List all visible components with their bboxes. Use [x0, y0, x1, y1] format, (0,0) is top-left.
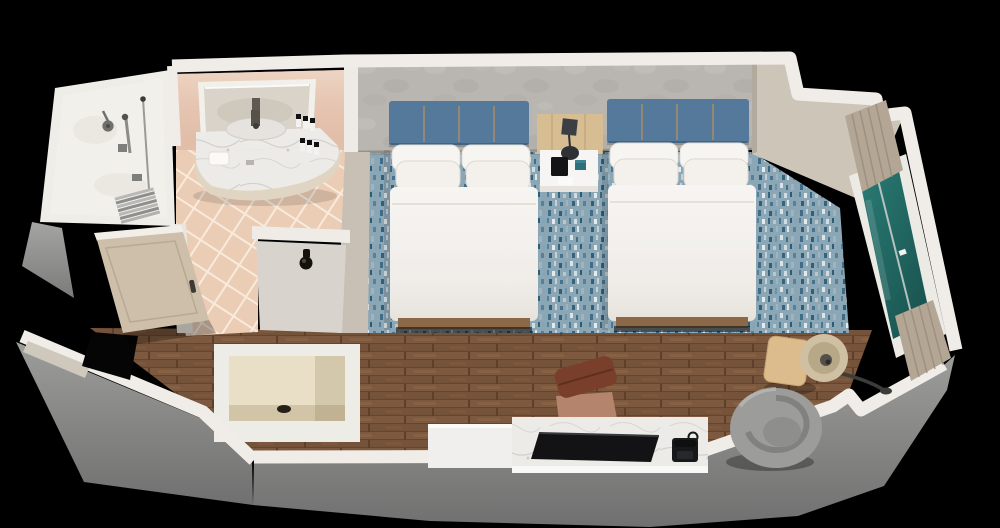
floor-lamp-bulb [820, 354, 832, 366]
hand-shower-head [122, 114, 128, 120]
phone-keypad [677, 451, 693, 459]
vanity-left-wall-top [172, 66, 176, 146]
shower-control-2 [132, 174, 142, 181]
floor-lamp-bulb-center [826, 360, 831, 365]
luggage-bench [428, 424, 512, 468]
shower-control-1 [118, 144, 127, 152]
bed2-base-shadow [614, 326, 750, 332]
luggage-bench-edge [428, 424, 512, 428]
hook-wall-face [256, 241, 346, 333]
table-lamp-shade [561, 118, 578, 135]
bed1-pillow-front-left [396, 161, 460, 191]
wall-hook [300, 257, 313, 270]
hotel-room-3d-floorplan [0, 0, 1000, 528]
queen-bed-2 [602, 99, 756, 332]
right-wall-shade [752, 60, 757, 154]
bed1-side-shadow [384, 150, 390, 330]
phone-handset [674, 440, 696, 447]
table-lamp-stem [569, 135, 570, 147]
soap-dish [246, 160, 254, 165]
bath-bedroom-wall-corner [344, 56, 358, 152]
folded-towel [209, 152, 229, 165]
nightstand [537, 114, 603, 192]
hotel-room-render-stage [0, 0, 1000, 528]
bed1-base-shadow [396, 327, 532, 333]
tv-flat [531, 433, 659, 462]
bed2-pillow-front-left [614, 159, 678, 189]
bed2-headboard [607, 99, 749, 143]
desk-front-edge [512, 466, 708, 473]
bed1-pillow-front-right [466, 161, 530, 191]
notepad [558, 177, 573, 185]
nightstand-tablet [551, 157, 568, 176]
sink-drain [253, 123, 259, 129]
bed2-duvet [608, 185, 756, 321]
shower-head-center [106, 124, 110, 128]
nightstand-front [540, 186, 598, 192]
closet [214, 344, 360, 442]
closet-floor-object [277, 405, 291, 413]
bed2-side-shadow [602, 150, 608, 330]
floor-lamp-base [880, 388, 892, 395]
bed1-duvet [390, 187, 538, 321]
wall-hook-highlight [302, 259, 306, 263]
shower-door-knob [140, 96, 146, 102]
queen-bed-1 [384, 101, 538, 333]
swivel-chair-cushion [763, 417, 801, 447]
walk-in-shower [40, 70, 175, 226]
bed2-pillow-front-right [684, 159, 748, 189]
teal-box-lid [575, 160, 586, 163]
